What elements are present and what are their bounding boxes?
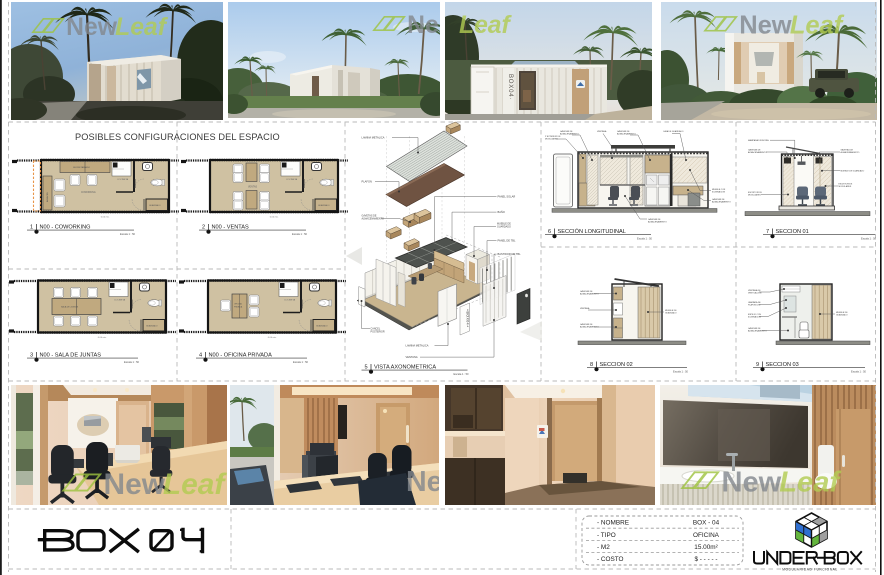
svg-text:ALMACENAMIENTO: ALMACENAMIENTO <box>748 330 767 333</box>
svg-text:GAVETAS DE: GAVETAS DE <box>748 149 761 152</box>
svg-text:ALMACENAMIENTO: ALMACENAMIENTO <box>580 293 599 296</box>
svg-text:6.00 mts: 6.00 mts <box>98 336 107 339</box>
svg-text:POSTERIOR: POSTERIOR <box>371 331 385 334</box>
svg-text:GAVETAS DE: GAVETAS DE <box>580 290 593 293</box>
svg-text:8: 8 <box>590 362 593 368</box>
svg-text:SECCION 01: SECCION 01 <box>776 229 809 235</box>
svg-text:6.00 mts: 6.00 mts <box>268 336 277 339</box>
svg-text:COCINETA: COCINETA <box>286 178 298 181</box>
svg-text:GAVETAS DE: GAVETAS DE <box>712 198 725 201</box>
svg-text:VENTANA: VENTANA <box>580 307 590 310</box>
svg-text:PLAFON LED: PLAFON LED <box>748 304 761 307</box>
svg-text:MAMPARA DIVISORIA: MAMPARA DIVISORIA <box>748 139 769 142</box>
svg-text:N00 - OFICINA PRIVADA: N00 - OFICINA PRIVADA <box>209 353 273 359</box>
svg-text:GUARDADO: GUARDADO <box>316 325 328 328</box>
svg-text:Escala 1 : 50: Escala 1 : 50 <box>637 236 653 240</box>
svg-text:PANEL DE TBL: PANEL DE TBL <box>498 239 517 243</box>
svg-text:4: 4 <box>199 353 202 359</box>
svg-text:OFICINA: OFICINA <box>693 532 720 539</box>
svg-text:2: 2 <box>202 225 205 231</box>
svg-text:VENTANA: VENTANA <box>597 130 607 133</box>
svg-text:ALMACENAMIENTO: ALMACENAMIENTO <box>841 151 860 154</box>
svg-text:7: 7 <box>766 229 769 235</box>
svg-text:- COSTO: - COSTO <box>597 556 624 563</box>
svg-text:PLAFON: PLAFON <box>362 180 373 184</box>
svg-text:ILUMINACION: ILUMINACION <box>712 191 726 194</box>
svg-text:GUARDADO: GUARDADO <box>318 204 330 207</box>
svg-text:3: 3 <box>30 353 33 359</box>
svg-text:N00 - VENTAS: N00 - VENTAS <box>212 225 249 231</box>
svg-text:MODULARIDAD FUNCIONAL: MODULARIDAD FUNCIONAL <box>782 568 837 572</box>
svg-text:GAVETAS DE: GAVETAS DE <box>580 323 593 326</box>
svg-text:VISTA AXONOMETRICA: VISTA AXONOMETRICA <box>374 365 436 371</box>
svg-text:GAVETAS DE: GAVETAS DE <box>841 149 854 152</box>
svg-text:Escala 1 : 50: Escala 1 : 50 <box>851 369 867 373</box>
svg-text:MODULARES: MODULARES <box>748 194 761 197</box>
svg-text:ALMACENAMIENTO: ALMACENAMIENTO <box>712 201 731 204</box>
svg-text:PANEL SOLAR: PANEL SOLAR <box>498 195 516 199</box>
svg-text:ALMACENAMIENTO: ALMACENAMIENTO <box>362 218 385 221</box>
svg-text:6: 6 <box>548 229 551 235</box>
svg-text:+BOX04+: +BOX04+ <box>466 309 470 328</box>
svg-text:- M2: - M2 <box>597 544 610 551</box>
svg-text:BAÑO: BAÑO <box>498 209 505 214</box>
svg-text:COCINETA: COCINETA <box>114 299 126 302</box>
svg-text:GAVETAS DE: GAVETAS DE <box>748 327 761 330</box>
svg-text:VENTAS: VENTAS <box>248 186 257 189</box>
svg-text:ILUMINACION: ILUMINACION <box>748 316 762 319</box>
svg-text:SECCION 03: SECCION 03 <box>766 362 799 368</box>
svg-text:Escala 1 : 50: Escala 1 : 50 <box>124 360 140 364</box>
svg-text:COCINETA: COCINETA <box>284 299 296 302</box>
svg-text:BOX - 04: BOX - 04 <box>693 520 720 527</box>
svg-text:Escala 1 : 50: Escala 1 : 50 <box>293 360 309 364</box>
svg-text:SECCIÓN LONGITUDINAL: SECCIÓN LONGITUDINAL <box>558 228 626 235</box>
svg-text:N00 - SALA DE JUNTAS: N00 - SALA DE JUNTAS <box>40 353 102 359</box>
svg-text:Escala 1 : 50: Escala 1 : 50 <box>861 236 877 240</box>
svg-text:GUARDADO: GUARDADO <box>665 312 677 315</box>
svg-text:GUARDADO: GUARDADO <box>836 314 848 317</box>
svg-text:COCINETA: COCINETA <box>117 178 129 181</box>
svg-text:15.00m²: 15.00m² <box>694 544 717 551</box>
svg-text:GAVETAS DE: GAVETAS DE <box>560 130 573 133</box>
svg-text:SALA DE JUNTAS: SALA DE JUNTAS <box>61 306 79 309</box>
svg-text:Escala 1 : 50: Escala 1 : 50 <box>673 369 689 373</box>
svg-text:GUARDADO: GUARDADO <box>497 226 511 229</box>
svg-text:GAVETAS DE: GAVETAS DE <box>617 130 630 133</box>
svg-text:ALMACENAMIENTO: ALMACENAMIENTO <box>648 221 667 224</box>
svg-text:MUEBLE DE GUARDADO: MUEBLE DE GUARDADO <box>841 170 865 173</box>
svg-text:6.00 mts: 6.00 mts <box>270 216 279 219</box>
svg-text:- TIPO: - TIPO <box>597 532 616 539</box>
svg-text:LAMPARA DE: LAMPARA DE <box>748 301 761 304</box>
svg-text:GAVETAS DE: GAVETAS DE <box>648 218 661 221</box>
svg-text:BASTIDOR DE TBL: BASTIDOR DE TBL <box>498 252 522 256</box>
svg-text:Escala 1 : 50: Escala 1 : 50 <box>120 232 136 236</box>
svg-text:6.00 mts: 6.00 mts <box>101 216 110 219</box>
svg-text:OFICINA: OFICINA <box>234 303 242 306</box>
svg-text:N00 - COWORKING: N00 - COWORKING <box>40 225 91 231</box>
svg-text:MODULARES: MODULARES <box>839 185 852 188</box>
svg-text:Escala 1 : 50: Escala 1 : 50 <box>292 232 308 236</box>
svg-text:$ - - - - -: $ - - - - - <box>694 556 717 563</box>
svg-text:GUARDADO: GUARDADO <box>146 325 158 328</box>
svg-text:ALMACENAMIENTO: ALMACENAMIENTO <box>748 151 767 154</box>
svg-text:VENTANA DE: VENTANA DE <box>748 289 761 292</box>
svg-text:LAMINA METALICA: LAMINA METALICA <box>362 136 385 140</box>
svg-text:LAMINA METALICA: LAMINA METALICA <box>406 344 429 348</box>
svg-text:- NOMBRE: - NOMBRE <box>597 520 629 527</box>
svg-text:VENTANA: VENTANA <box>406 355 418 359</box>
svg-text:COWORKING: COWORKING <box>81 192 96 194</box>
svg-text:PRIVADA: PRIVADA <box>234 306 243 309</box>
svg-text:POSIBLES CONFIGURACIONES DEL E: POSIBLES CONFIGURACIONES DEL ESPACIO <box>75 132 280 142</box>
svg-text:Escala 1 : 50: Escala 1 : 50 <box>454 372 470 376</box>
svg-text:CAJA DE GUARDADO: CAJA DE GUARDADO <box>663 130 684 133</box>
svg-text:SECRETARIADO: SECRETARIADO <box>73 166 90 169</box>
svg-text:SECCION 02: SECCION 02 <box>600 362 633 368</box>
svg-text:GUARDADO: GUARDADO <box>149 204 161 207</box>
svg-text:1: 1 <box>30 225 33 231</box>
svg-text:5: 5 <box>365 365 368 371</box>
svg-text:ALMACEN: ALMACEN <box>46 192 49 202</box>
svg-text:9: 9 <box>756 362 759 368</box>
